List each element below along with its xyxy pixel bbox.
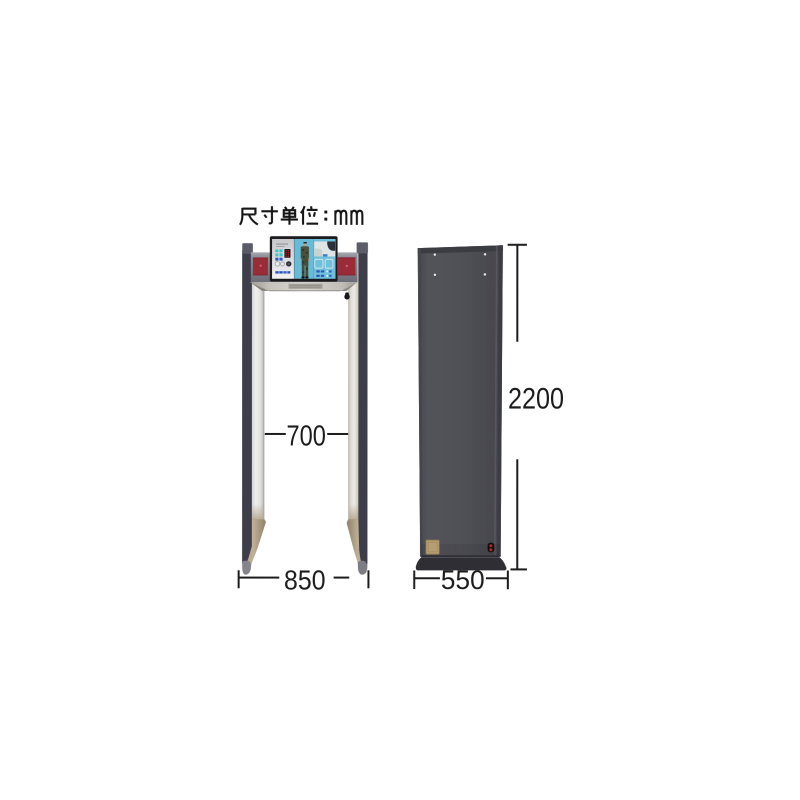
svg-text:850: 850: [284, 564, 326, 595]
svg-text:550: 550: [441, 565, 485, 595]
svg-text:2200: 2200: [508, 383, 564, 416]
svg-text:700: 700: [286, 421, 325, 453]
